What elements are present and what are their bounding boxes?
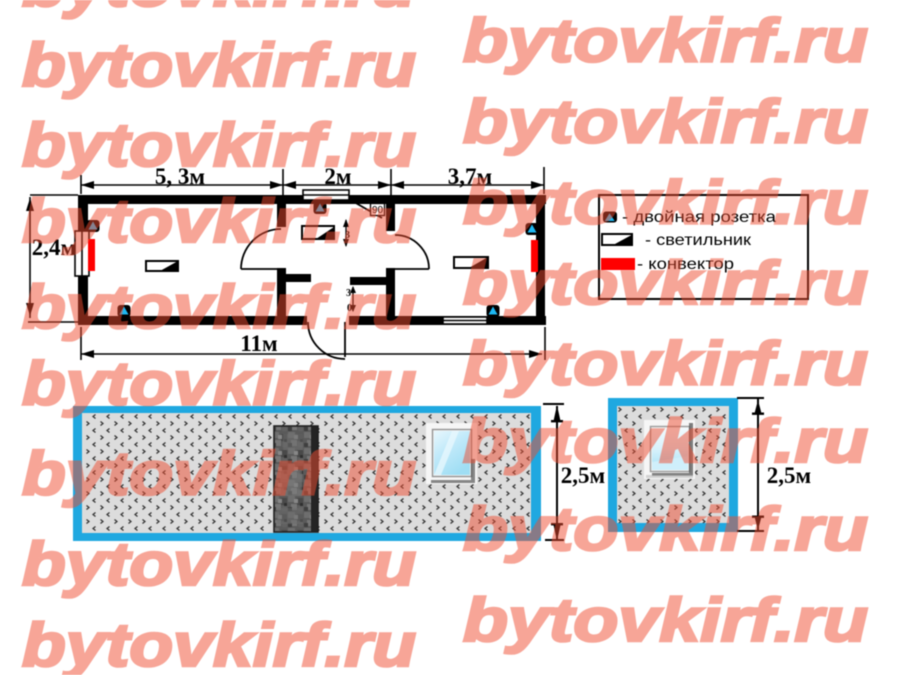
svg-text:bytovkirf.ru: bytovkirf.ru [463, 7, 868, 75]
svg-text:bytovkirf.ru: bytovkirf.ru [463, 330, 868, 398]
svg-text:bytovkirf.ru: bytovkirf.ru [22, 611, 416, 675]
svg-text:bytovkirf.ru: bytovkirf.ru [22, 530, 416, 598]
svg-text:bytovkirf.ru: bytovkirf.ru [463, 88, 868, 156]
svg-text:bytovkirf.ru: bytovkirf.ru [22, 31, 416, 99]
svg-text:bytovkirf.ru: bytovkirf.ru [22, 111, 416, 179]
svg-text:bytovkirf.ru: bytovkirf.ru [463, 169, 868, 237]
svg-text:bytovkirf.ru: bytovkirf.ru [22, 273, 416, 341]
svg-text:bytovkirf.ru: bytovkirf.ru [463, 586, 868, 654]
svg-text:bytovkirf.ru: bytovkirf.ru [22, 350, 416, 418]
svg-text:bytovkirf.ru: bytovkirf.ru [22, 0, 416, 19]
svg-text:bytovkirf.ru: bytovkirf.ru [22, 187, 416, 255]
svg-text:bytovkirf.ru: bytovkirf.ru [463, 495, 868, 563]
svg-text:bytovkirf.ru: bytovkirf.ru [22, 440, 416, 508]
svg-text:bytovkirf.ru: bytovkirf.ru [463, 407, 868, 475]
svg-text:bytovkirf.ru: bytovkirf.ru [463, 249, 868, 317]
